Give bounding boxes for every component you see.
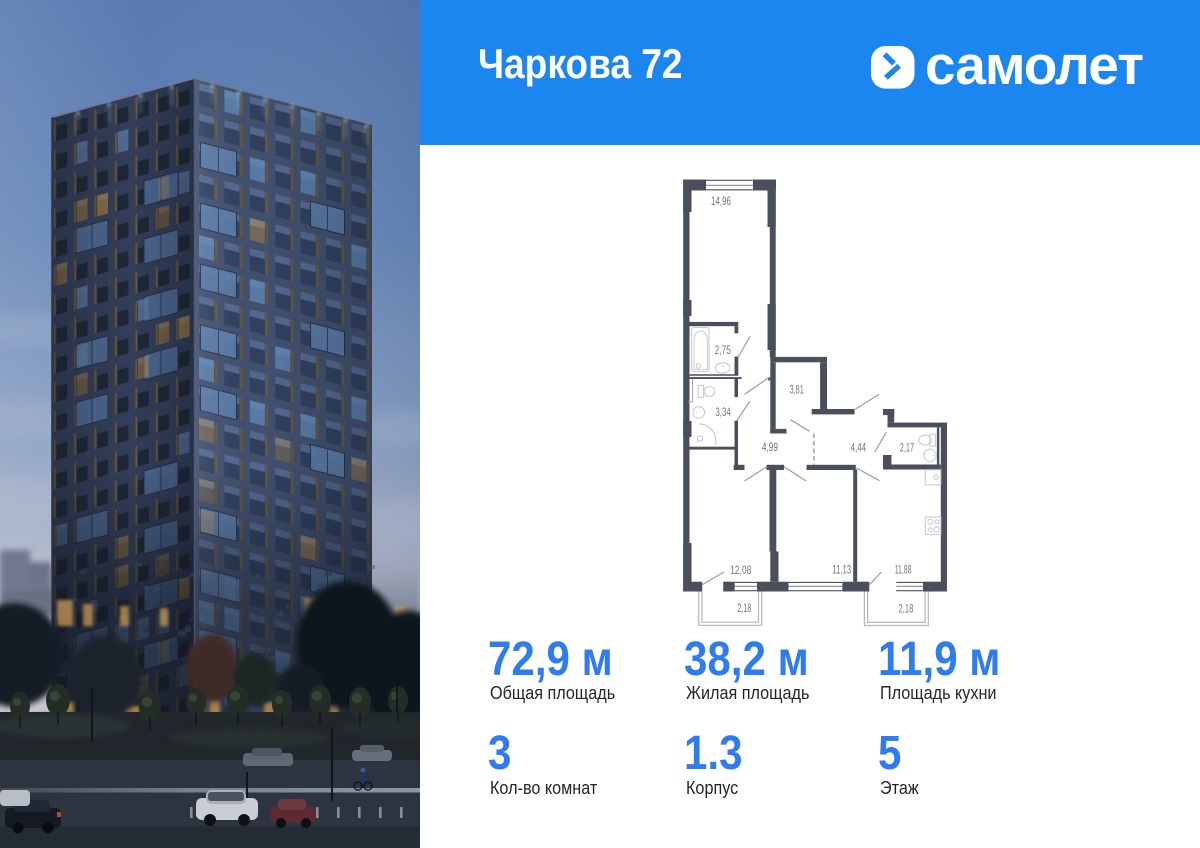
svg-text:2,17: 2,17 bbox=[900, 443, 914, 455]
svg-text:3,81: 3,81 bbox=[790, 384, 804, 396]
svg-text:4,99: 4,99 bbox=[762, 442, 778, 454]
svg-text:11,13: 11,13 bbox=[832, 565, 851, 577]
svg-text:2,18: 2,18 bbox=[737, 603, 751, 615]
svg-text:2,18: 2,18 bbox=[899, 604, 914, 616]
svg-text:2,75: 2,75 bbox=[715, 345, 731, 357]
svg-text:11,88: 11,88 bbox=[895, 565, 912, 577]
svg-text:12,08: 12,08 bbox=[730, 565, 751, 577]
svg-text:4,44: 4,44 bbox=[851, 443, 867, 455]
svg-text:14,96: 14,96 bbox=[711, 196, 731, 208]
svg-text:3,34: 3,34 bbox=[715, 407, 731, 419]
